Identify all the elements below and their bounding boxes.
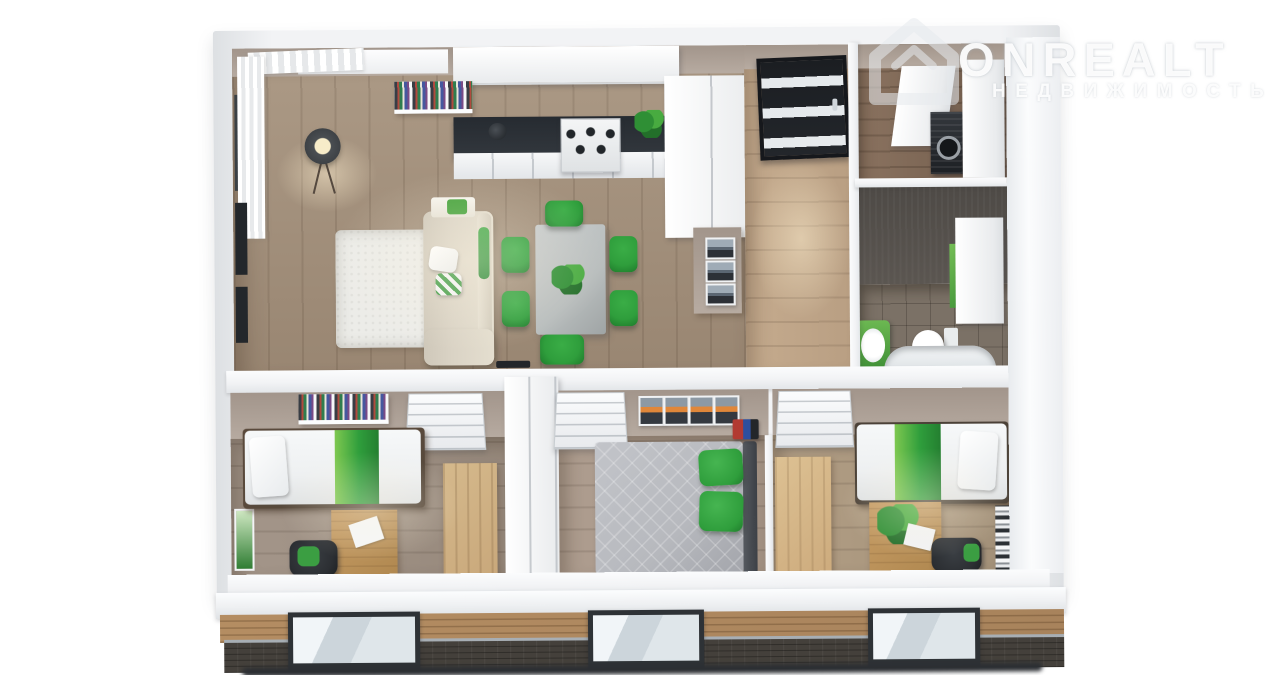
facade-window [588, 610, 704, 669]
sofa-green-throw [447, 199, 467, 214]
washing-machine-door [937, 136, 961, 160]
table-plant [551, 264, 585, 294]
sofa-chaise [424, 329, 494, 365]
bedroom1-shelf [298, 394, 388, 425]
living-rug [335, 229, 434, 348]
kitchen-plant [634, 110, 664, 138]
bedroom2-headboard [743, 441, 758, 573]
facade-window [288, 612, 420, 671]
bedroom3-pillow [957, 431, 999, 491]
bedroom1-chair-green-pad [297, 546, 319, 566]
watermark-subtitle: НЕДВИЖИМОСТЬ [992, 82, 1273, 101]
dining-chair [540, 334, 584, 364]
bedroom1-wardrobe [443, 463, 498, 575]
tv-panel [235, 203, 248, 275]
dining-chair [610, 290, 638, 326]
bathroom-cabinet [955, 217, 1004, 323]
bedroom2-picture [638, 396, 664, 426]
kitchen-upper-cabinets [453, 46, 679, 86]
bedroom3-bed-green-stripe [895, 424, 942, 500]
dining-chair [502, 291, 530, 327]
window-glass [873, 613, 975, 660]
bedroom2-green-pillow [698, 448, 744, 487]
window-glass [293, 617, 415, 664]
sofa-striped-pillow [436, 273, 462, 295]
bedroom2-picture [688, 395, 714, 425]
bedroom1-poster [234, 509, 254, 571]
bedroom1-pillow [249, 435, 289, 498]
bedroom3-door [775, 391, 854, 448]
bedroom1-bed-green-stripe [335, 430, 380, 504]
sofa-green-cushion [478, 227, 489, 279]
bathroom-sink-basin [861, 328, 885, 362]
white-wardrobe [504, 377, 559, 575]
dining-chair [609, 236, 637, 272]
bedroom2-door [554, 392, 629, 449]
wall-bookshelf [394, 81, 472, 114]
floor-lamp-shade [305, 128, 341, 164]
dining-chair [501, 237, 529, 273]
wall-laundry-bath [855, 177, 1007, 187]
facade-window [868, 608, 980, 667]
watermark: ONREALT НЕДВИЖИМОСТЬ [858, 12, 1254, 116]
house-icon [858, 12, 970, 112]
kettle [488, 123, 506, 140]
bedroom3-wardrobe [775, 457, 832, 573]
tv-panel-lower [236, 287, 248, 343]
window-glass [593, 615, 699, 662]
watermark-brand: ONREALT [958, 36, 1231, 83]
floorplan-render: ONREALT НЕДВИЖИМОСТЬ [0, 0, 1280, 675]
wall-picture [705, 237, 735, 259]
wall-right [1006, 37, 1064, 573]
wall-picture [705, 260, 735, 282]
wall-picture [706, 283, 736, 305]
bedroom2-green-pillow [699, 491, 744, 532]
bedroom2-nightstand-items [733, 419, 759, 439]
stove [560, 118, 620, 172]
bedroom2-picture [663, 396, 689, 426]
bedroom3-chair-green-pad [963, 544, 979, 562]
soundbar [496, 361, 530, 368]
dining-chair [545, 200, 583, 226]
sofa-pillow [428, 245, 459, 273]
entry-door-handle [832, 99, 837, 111]
